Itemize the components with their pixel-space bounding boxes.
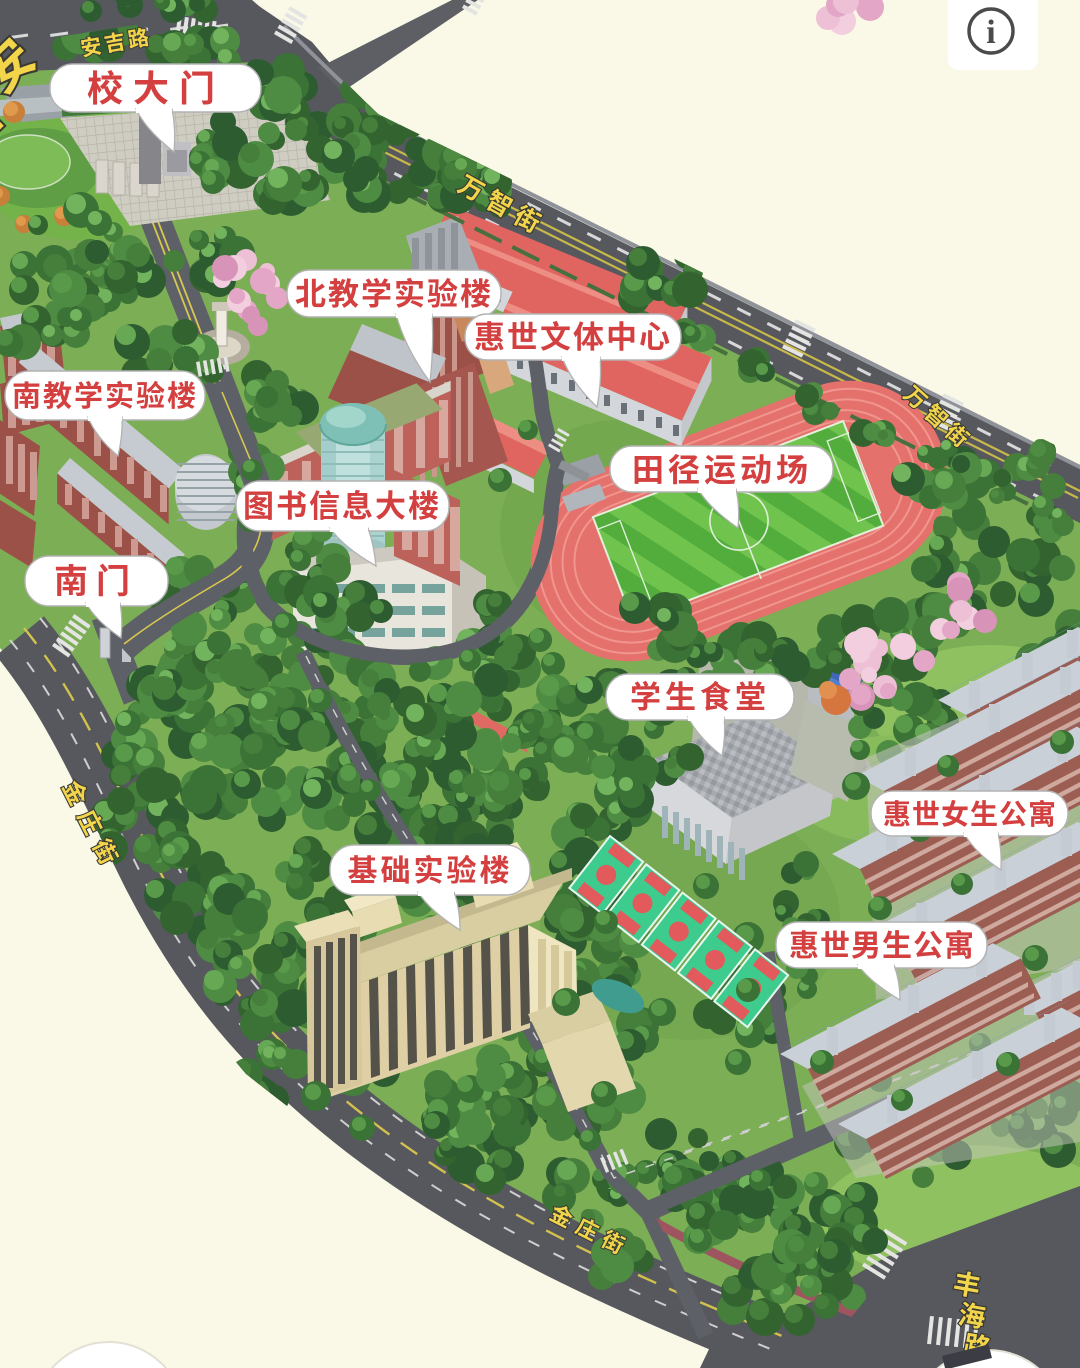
svg-text:田径运动场: 田径运动场 (632, 452, 812, 488)
svg-text:惠世文体中心: 惠世文体中心 (474, 320, 672, 355)
svg-text:学生食堂: 学生食堂 (630, 680, 770, 715)
svg-text:图书信息大楼: 图书信息大楼 (243, 489, 441, 524)
svg-text:北教学实验楼: 北教学实验楼 (295, 277, 493, 312)
svg-text:南教学实验楼: 南教学实验楼 (12, 380, 198, 413)
svg-text:校大门: 校大门 (87, 68, 225, 109)
svg-text:南门: 南门 (54, 563, 138, 601)
svg-text:惠世男生公寓: 惠世男生公寓 (789, 930, 975, 963)
svg-text:惠世女生公寓: 惠世女生公寓 (883, 799, 1057, 830)
svg-text:丰: 丰 (951, 1268, 983, 1302)
svg-text:海: 海 (956, 1299, 988, 1333)
svg-text:基础实验楼: 基础实验楼 (348, 855, 513, 888)
svg-text:i: i (986, 14, 995, 51)
